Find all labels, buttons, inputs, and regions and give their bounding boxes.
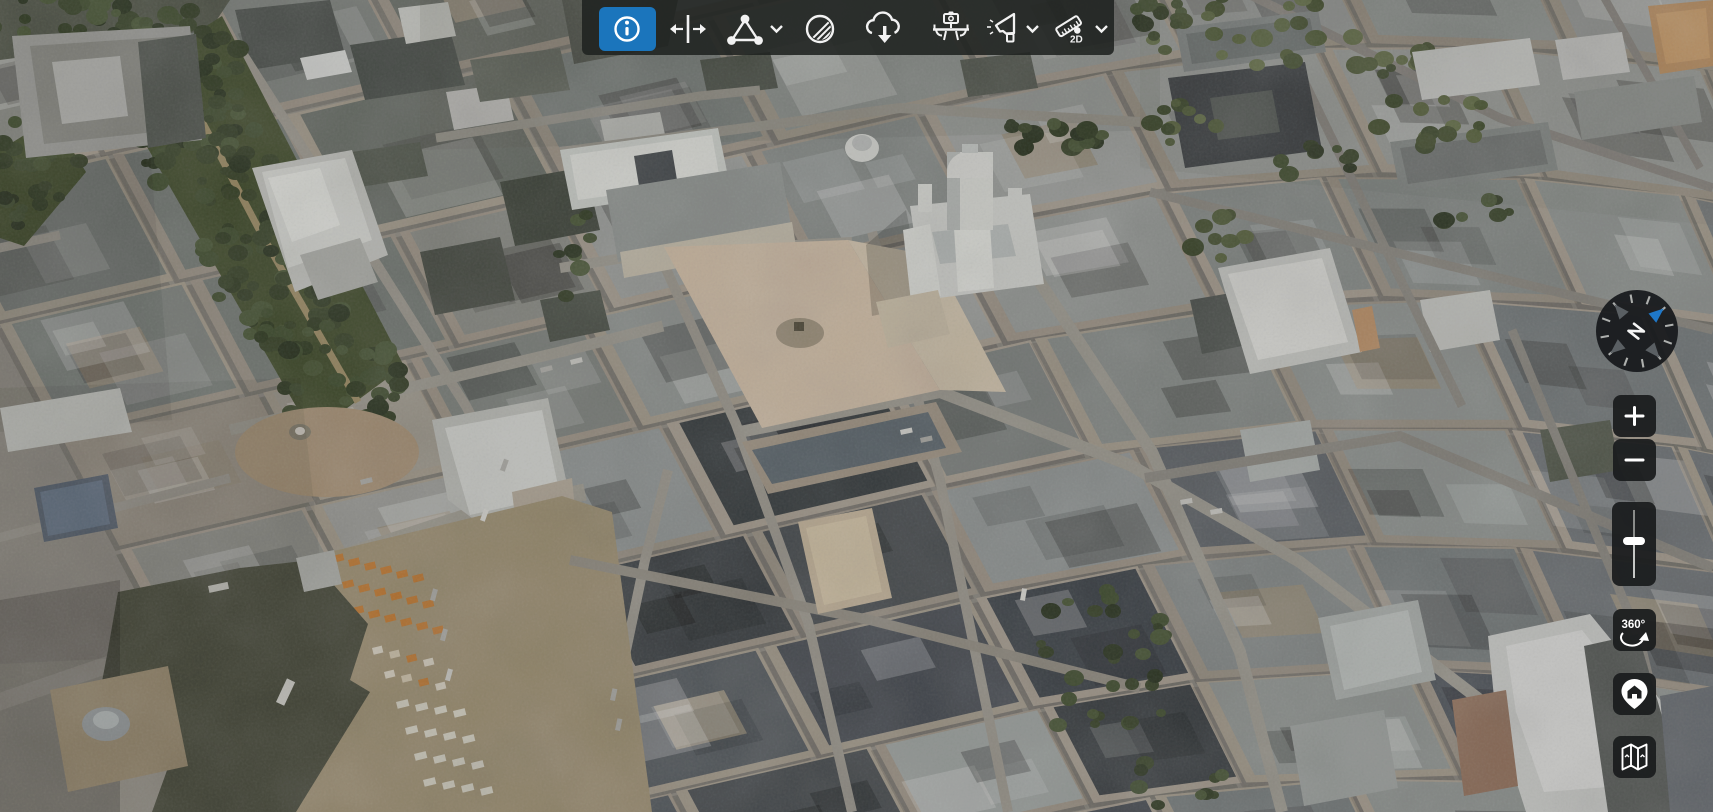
svg-text:360°: 360° — [1622, 619, 1646, 631]
svg-text:2D: 2D — [1070, 35, 1083, 46]
